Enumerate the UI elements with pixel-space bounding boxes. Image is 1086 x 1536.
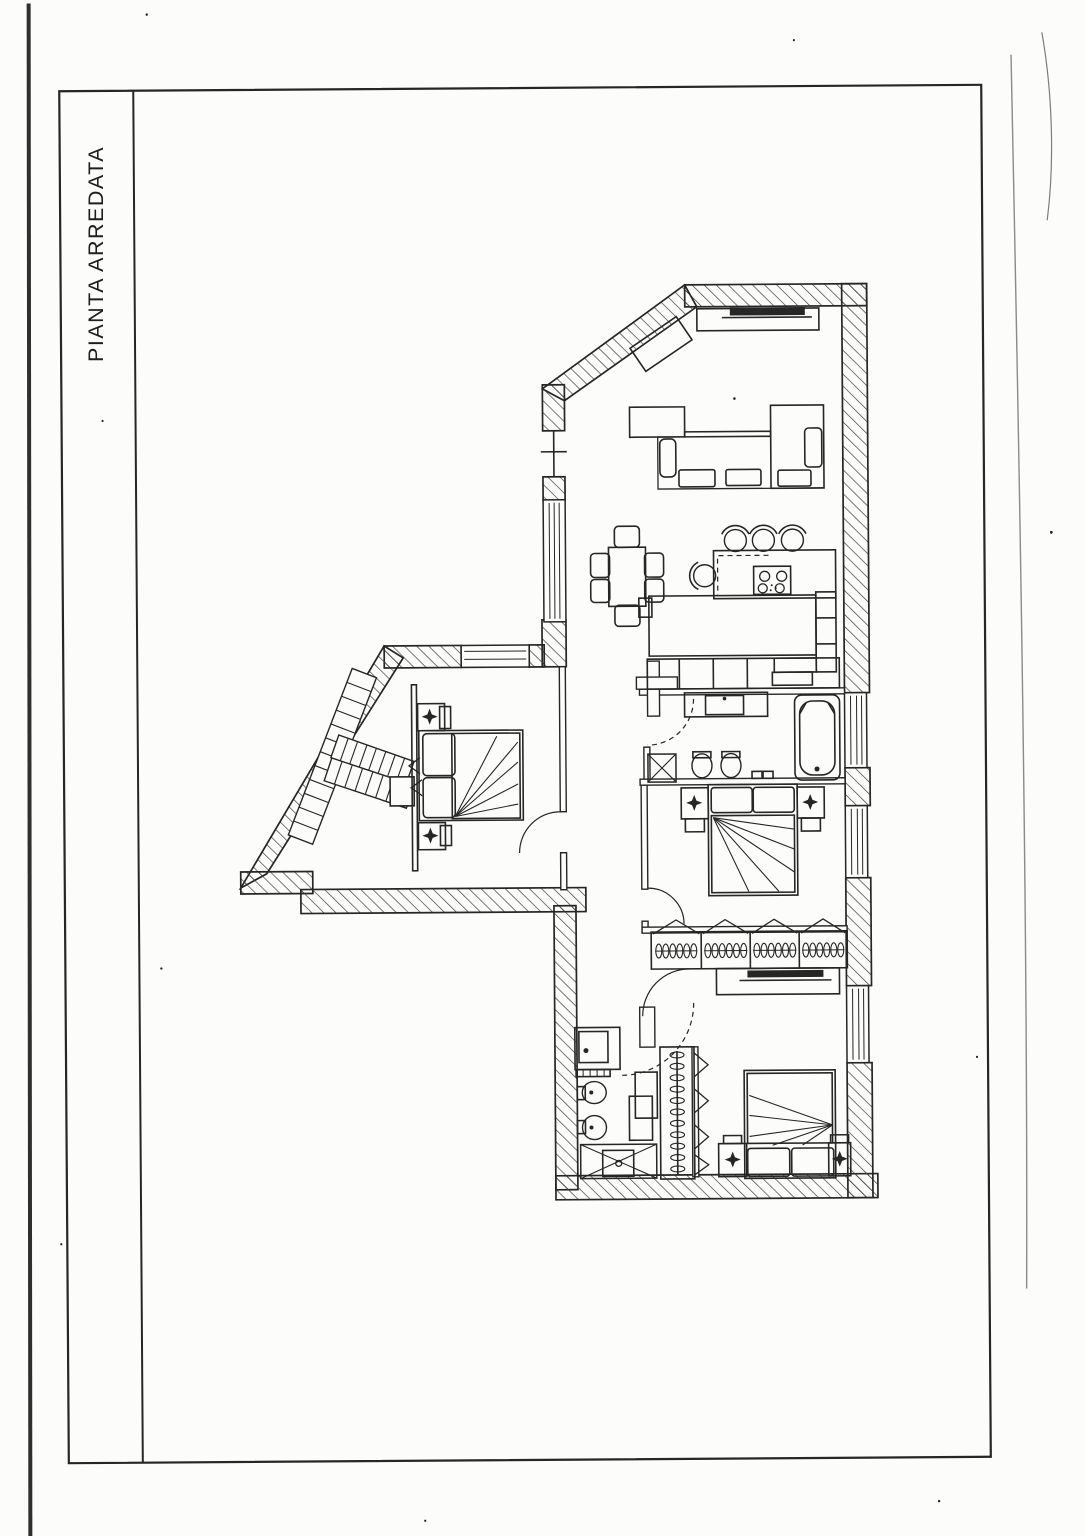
dining-furniture [590, 526, 664, 627]
bottom-bathroom-fixtures [575, 1027, 709, 1180]
windows [460, 429, 869, 1066]
floorplan-drawing [0, 0, 1086, 1536]
drawing-title: PIANTA ARREDATA [84, 146, 109, 362]
kitchen-furniture [638, 525, 839, 689]
staircase [287, 668, 422, 844]
scanned-page: PIANTA ARREDATA [0, 0, 1086, 1536]
tv-cabinet [716, 968, 839, 995]
main-bathroom-fixtures [647, 692, 840, 782]
bottom-bedroom-furniture [718, 1070, 851, 1179]
middle-bedroom-furniture [681, 784, 825, 896]
left-bedroom-furniture [411, 684, 523, 871]
page-artifacts [20, 0, 1062, 1536]
